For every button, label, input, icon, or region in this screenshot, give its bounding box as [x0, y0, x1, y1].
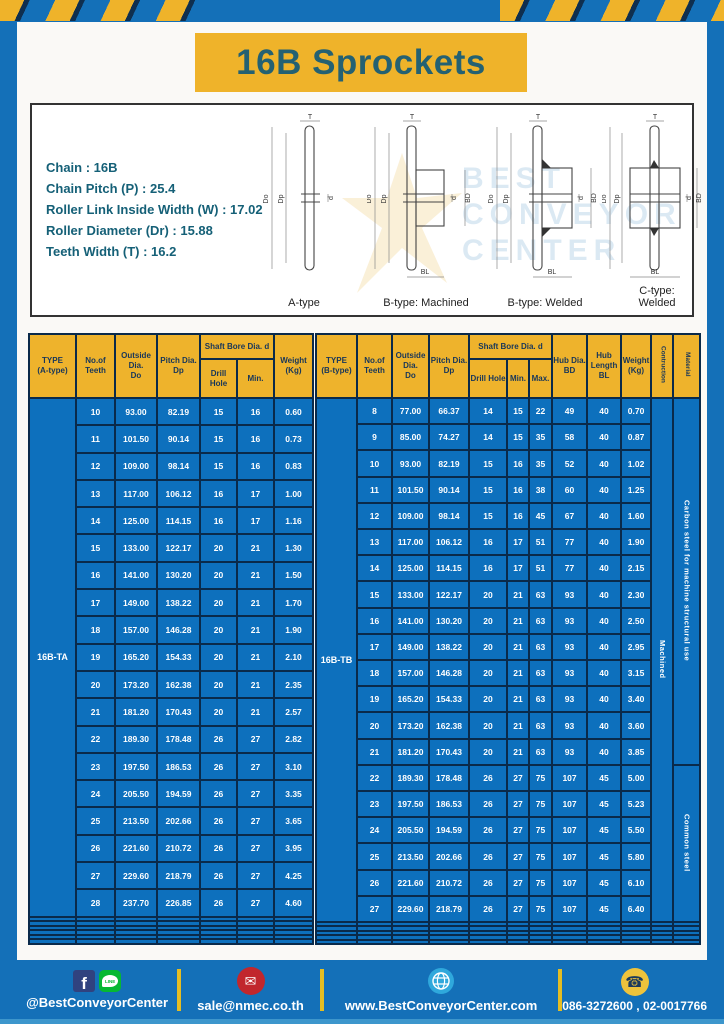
cell: 17	[237, 480, 274, 507]
cell: 10	[76, 398, 115, 425]
cell: 20	[76, 671, 115, 698]
cell: 141.00	[392, 608, 429, 634]
cell: 186.53	[429, 791, 469, 817]
cell: 20	[469, 686, 507, 712]
cell: 27	[357, 896, 392, 922]
header-cell: Shaft Bore Dia. d	[469, 334, 552, 359]
cell	[76, 939, 115, 944]
header-cell: Hub Dia. BD	[552, 334, 587, 398]
cell: 24	[76, 780, 115, 807]
cell: 5.50	[621, 817, 651, 843]
cell: 26	[200, 889, 237, 916]
cell: 114.15	[429, 555, 469, 581]
cell: 173.20	[392, 712, 429, 738]
cell: 27	[507, 765, 529, 791]
cell: 2.10	[274, 644, 313, 671]
cell: 146.28	[429, 660, 469, 686]
table-row: 19165.20154.3320216393403.40	[316, 686, 700, 712]
cell: 45	[587, 896, 621, 922]
cell: 11	[76, 425, 115, 452]
svg-text:Do: Do	[602, 194, 608, 203]
svg-text:BL: BL	[421, 269, 430, 276]
cell: 63	[529, 686, 552, 712]
cell: 0.87	[621, 424, 651, 450]
table-row: 13117.00106.1216175177401.90	[316, 529, 700, 555]
cell: 3.35	[274, 780, 313, 807]
header-cell: Weight (Kg)	[621, 334, 651, 398]
cell: 49	[552, 398, 587, 424]
cell: 40	[587, 450, 621, 476]
cell: 45	[587, 843, 621, 869]
cell: 130.20	[429, 608, 469, 634]
cell: 21	[237, 671, 274, 698]
diagram-panel: BEST CONVEYOR CENTER Chain : 16B Chain P…	[30, 103, 694, 317]
svg-text:Dp: Dp	[278, 194, 285, 203]
svg-text:BD: BD	[591, 193, 598, 203]
cell: 15	[507, 424, 529, 450]
cell	[429, 940, 469, 945]
cell: 16	[237, 425, 274, 452]
cell: 178.48	[429, 765, 469, 791]
cell: 2.30	[621, 581, 651, 607]
cell	[157, 939, 200, 944]
cell: 210.72	[429, 870, 469, 896]
cell: 9	[357, 424, 392, 450]
cell: 27	[237, 726, 274, 753]
cell: 25	[357, 843, 392, 869]
cell: 20	[200, 562, 237, 589]
cell: 2.95	[621, 634, 651, 660]
cell: 16	[469, 555, 507, 581]
figure-b-type-machined: T Do Dp d BD BL	[367, 113, 479, 283]
cell: 213.50	[115, 807, 157, 834]
cell: 75	[529, 843, 552, 869]
cell: 20	[200, 534, 237, 561]
cell: 26	[469, 765, 507, 791]
cell: 21	[237, 616, 274, 643]
header-cell: Min.	[507, 359, 529, 398]
cell: 20	[469, 739, 507, 765]
cell: 186.53	[157, 753, 200, 780]
table-row: 25213.50202.66262775107455.80	[316, 843, 700, 869]
cell: 21	[507, 608, 529, 634]
cell: 205.50	[392, 817, 429, 843]
website-url: www.BestConveyorCenter.com	[345, 998, 537, 1013]
table-b-sprockets: TYPE (B-type)No.of TeethOutside Dia. DoP…	[315, 333, 701, 945]
cell: 52	[552, 450, 587, 476]
cell: 35	[529, 450, 552, 476]
svg-text:Dp: Dp	[503, 194, 510, 203]
cell: 107	[552, 870, 587, 896]
cell: 101.50	[115, 425, 157, 452]
cell: 16	[507, 477, 529, 503]
empty-row	[29, 939, 313, 944]
cell: 122.17	[157, 534, 200, 561]
cell: 117.00	[392, 529, 429, 555]
cell	[357, 940, 392, 945]
cell: 165.20	[115, 644, 157, 671]
cell: 17	[237, 507, 274, 534]
cell: 125.00	[115, 507, 157, 534]
table-a-wrap: TYPE (A-type)No.of TeethOutside Dia. DoP…	[28, 333, 312, 945]
cell: 189.30	[392, 765, 429, 791]
cell: 40	[587, 686, 621, 712]
header-cell: Pitch Dia. Dp	[429, 334, 469, 398]
figure-c-type-welded: T Do Dp d BD BL	[602, 113, 702, 283]
cell	[392, 940, 429, 945]
footer-social-section: f LINE @BestConveyorCenter	[17, 962, 177, 1018]
cell: 109.00	[392, 503, 429, 529]
cell: 3.40	[621, 686, 651, 712]
header-cell: Outside Dia. Do	[392, 334, 429, 398]
cell: 67	[552, 503, 587, 529]
social-handle: @BestConveyorCenter	[26, 995, 168, 1010]
cell: 133.00	[392, 581, 429, 607]
cell	[621, 940, 651, 945]
cell: 27	[507, 896, 529, 922]
svg-text:Dp: Dp	[381, 194, 388, 203]
cell: 2.50	[621, 608, 651, 634]
cell	[237, 939, 274, 944]
cell: 13	[357, 529, 392, 555]
cell: 20	[469, 660, 507, 686]
cell: 165.20	[392, 686, 429, 712]
cell: 130.20	[157, 562, 200, 589]
cell: 2.82	[274, 726, 313, 753]
cell: 21	[237, 698, 274, 725]
cell: 19	[76, 644, 115, 671]
page-title: 16B Sprockets	[236, 43, 486, 83]
cell: 40	[587, 634, 621, 660]
table-row: 16B-TA1093.0082.1915160.60	[29, 398, 313, 425]
cell: 63	[529, 660, 552, 686]
cell: 21	[507, 660, 529, 686]
cell	[274, 939, 313, 944]
cell: 17	[507, 529, 529, 555]
header-cell: TYPE (A-type)	[29, 334, 76, 398]
cell: 194.59	[429, 817, 469, 843]
table-row: 27229.60218.79262775107456.40	[316, 896, 700, 922]
cell: 98.14	[429, 503, 469, 529]
cell: 1.30	[274, 534, 313, 561]
table-row: 16141.00130.2020216393402.50	[316, 608, 700, 634]
cell: 1.60	[621, 503, 651, 529]
cell: 173.20	[115, 671, 157, 698]
cell: 189.30	[115, 726, 157, 753]
sprocket-figures: T Do Dp d A-type T Do Dp	[32, 105, 692, 315]
cell: 21	[507, 634, 529, 660]
cell: 27	[76, 862, 115, 889]
cell: 14	[469, 424, 507, 450]
cell: 1.00	[274, 480, 313, 507]
cell: 27	[507, 870, 529, 896]
cell: 26	[469, 817, 507, 843]
cell: 16	[507, 503, 529, 529]
cell: 25	[76, 807, 115, 834]
cell: 15	[200, 453, 237, 480]
cell: 74.27	[429, 424, 469, 450]
cell: 117.00	[115, 480, 157, 507]
header-cell: TYPE (B-type)	[316, 334, 357, 398]
cell: 20	[200, 589, 237, 616]
cell: 162.38	[157, 671, 200, 698]
cell: 162.38	[429, 712, 469, 738]
cell: 12	[76, 453, 115, 480]
cell: 40	[587, 608, 621, 634]
cell: 27	[237, 807, 274, 834]
cell: 107	[552, 765, 587, 791]
cell: 21	[76, 698, 115, 725]
svg-text:Dp: Dp	[614, 194, 621, 203]
cell: 93	[552, 712, 587, 738]
empty-row	[316, 940, 700, 945]
figure-label: A-type	[288, 297, 320, 309]
header-cell: Min.	[237, 359, 274, 398]
cell: 197.50	[115, 753, 157, 780]
table-row: 23197.50186.53262775107455.23	[316, 791, 700, 817]
cell: 237.70	[115, 889, 157, 916]
cell: 20	[469, 712, 507, 738]
cell: 40	[587, 555, 621, 581]
cell: 58	[552, 424, 587, 450]
svg-text:d: d	[578, 196, 585, 200]
cell: 35	[529, 424, 552, 450]
cell: 21	[237, 562, 274, 589]
cell: 141.00	[115, 562, 157, 589]
svg-text:T: T	[410, 114, 415, 121]
cell: 82.19	[157, 398, 200, 425]
cell: 93	[552, 608, 587, 634]
cell: 146.28	[157, 616, 200, 643]
header-cell: Shaft Bore Dia. d	[200, 334, 274, 359]
cell: 221.60	[115, 835, 157, 862]
cell: 3.85	[621, 739, 651, 765]
header-cell: Pitch Dia. Dp	[157, 334, 200, 398]
figure-label: C-type: Welded	[638, 285, 675, 309]
cell: 45	[587, 817, 621, 843]
cell	[200, 939, 237, 944]
cell: 181.20	[115, 698, 157, 725]
cell: 181.20	[392, 739, 429, 765]
cell: 3.95	[274, 835, 313, 862]
cell: 26	[469, 843, 507, 869]
material-header: Material	[673, 334, 700, 398]
table-row: 1093.0082.1915163552401.02	[316, 450, 700, 476]
table-row: 14125.00114.1516175177402.15	[316, 555, 700, 581]
header-row: TYPE (A-type)No.of TeethOutside Dia. DoP…	[29, 334, 313, 359]
cell: 0.83	[274, 453, 313, 480]
cell: 93	[552, 634, 587, 660]
cell: 98.14	[157, 453, 200, 480]
svg-text:BD: BD	[696, 193, 702, 203]
material-value: Carbon steel for machine structural use	[673, 398, 700, 765]
table-row: 12109.0098.1415164567401.60	[316, 503, 700, 529]
cell: 20	[200, 644, 237, 671]
cell: 85.00	[392, 424, 429, 450]
catalog-page: { "title": "16B Sprockets", "specs": { "…	[0, 0, 724, 1024]
cell: 170.43	[157, 698, 200, 725]
table-row: 16B-TB877.0066.3714152249400.70MachinedC…	[316, 398, 700, 424]
cell: 13	[76, 480, 115, 507]
cell: 16	[357, 608, 392, 634]
cell	[469, 940, 507, 945]
cell	[651, 940, 673, 945]
cell: 93.00	[115, 398, 157, 425]
cell: 77.00	[392, 398, 429, 424]
cell: 16	[76, 562, 115, 589]
header-cell: Weight (Kg)	[274, 334, 313, 398]
cell: 27	[237, 835, 274, 862]
cell: 122.17	[429, 581, 469, 607]
cell: 1.25	[621, 477, 651, 503]
header-cell: Max.	[529, 359, 552, 398]
cell: 27	[507, 817, 529, 843]
cell: 109.00	[115, 453, 157, 480]
cell: 45	[587, 765, 621, 791]
cell: 106.12	[429, 529, 469, 555]
footer-email-section: ✉ sale@nmec.co.th	[181, 962, 320, 1018]
cell: 51	[529, 529, 552, 555]
figure-label: B-type: Machined	[383, 297, 469, 309]
cell: 210.72	[157, 835, 200, 862]
svg-text:d: d	[328, 196, 335, 200]
cell: 93	[552, 686, 587, 712]
cell: 77	[552, 555, 587, 581]
cell	[673, 940, 700, 945]
cell: 101.50	[392, 477, 429, 503]
table-b-wrap: TYPE (B-type)No.of TeethOutside Dia. DoP…	[315, 333, 700, 945]
cell: 93.00	[392, 450, 429, 476]
cell: 1.90	[274, 616, 313, 643]
cell: 90.14	[157, 425, 200, 452]
cell: 4.25	[274, 862, 313, 889]
cell: 2.15	[621, 555, 651, 581]
table-row: 26221.60210.72262775107456.10	[316, 870, 700, 896]
cell: 218.79	[157, 862, 200, 889]
cell: 24	[357, 817, 392, 843]
cell: 16	[200, 480, 237, 507]
cell: 15	[357, 581, 392, 607]
cell: 15	[76, 534, 115, 561]
cell: 75	[529, 791, 552, 817]
cell: 16	[469, 529, 507, 555]
cell: 6.10	[621, 870, 651, 896]
cell: 21	[237, 534, 274, 561]
cell: 26	[200, 862, 237, 889]
cell: 8	[357, 398, 392, 424]
cell: 75	[529, 896, 552, 922]
cell: 14	[469, 398, 507, 424]
table-row: 11101.5090.1415163860401.25	[316, 477, 700, 503]
cell: 27	[237, 862, 274, 889]
cell: 157.00	[115, 616, 157, 643]
cell: 27	[237, 780, 274, 807]
facebook-icon: f	[73, 970, 95, 992]
table-row: 21181.20170.4320216393403.85	[316, 739, 700, 765]
cell: 16	[237, 398, 274, 425]
table-row: 17149.00138.2220216393402.95	[316, 634, 700, 660]
cell: 149.00	[115, 589, 157, 616]
cell: 107	[552, 843, 587, 869]
cell: 0.73	[274, 425, 313, 452]
table-a-sprockets: TYPE (A-type)No.of TeethOutside Dia. DoP…	[28, 333, 314, 945]
cell: 23	[76, 753, 115, 780]
cell: 82.19	[429, 450, 469, 476]
cell	[552, 940, 587, 945]
header-cell: No.of Teeth	[357, 334, 392, 398]
cell: 6.40	[621, 896, 651, 922]
cell: 26	[357, 870, 392, 896]
cell: 0.70	[621, 398, 651, 424]
figure-label: B-type: Welded	[507, 297, 582, 309]
cell: 221.60	[392, 870, 429, 896]
cell: 63	[529, 581, 552, 607]
cell: 75	[529, 870, 552, 896]
construction-header: Contruction	[651, 334, 673, 398]
table-row: 15133.00122.1720216393402.30	[316, 581, 700, 607]
cell: 15	[469, 450, 507, 476]
cell: 213.50	[392, 843, 429, 869]
cell: 20	[200, 616, 237, 643]
cell: 16	[237, 453, 274, 480]
header-cell: Hub Length BL	[587, 334, 621, 398]
footer-website-section: www.BestConveyorCenter.com	[324, 962, 559, 1018]
hazard-stripes-right	[500, 0, 724, 21]
type-label: 16B-TA	[29, 398, 76, 917]
svg-text:Do: Do	[488, 194, 495, 203]
cell: 157.00	[392, 660, 429, 686]
cell: 202.66	[429, 843, 469, 869]
header-cell: Drill Hole	[469, 359, 507, 398]
cell: 22	[76, 726, 115, 753]
cell: 205.50	[115, 780, 157, 807]
material-value: Common steel	[673, 765, 700, 922]
cell: 40	[587, 477, 621, 503]
cell: 27	[507, 843, 529, 869]
cell: 45	[529, 503, 552, 529]
cell: 149.00	[392, 634, 429, 660]
title-banner: 16B Sprockets	[195, 33, 527, 92]
cell	[587, 940, 621, 945]
cell: 2.57	[274, 698, 313, 725]
cell: 21	[507, 712, 529, 738]
cell: 229.60	[392, 896, 429, 922]
cell: 3.60	[621, 712, 651, 738]
cell: 40	[587, 503, 621, 529]
cell: 19	[357, 686, 392, 712]
hazard-stripes-left	[0, 0, 196, 21]
svg-text:T: T	[536, 114, 541, 121]
cell: 21	[507, 581, 529, 607]
cell: 75	[529, 765, 552, 791]
cell: 23	[357, 791, 392, 817]
cell	[316, 940, 357, 945]
header-cell: No.of Teeth	[76, 334, 115, 398]
cell: 20	[469, 581, 507, 607]
cell: 27	[237, 753, 274, 780]
cell: 27	[507, 791, 529, 817]
cell: 26	[469, 896, 507, 922]
cell: 63	[529, 739, 552, 765]
cell: 2.35	[274, 671, 313, 698]
cell: 93	[552, 660, 587, 686]
cell: 26	[200, 780, 237, 807]
type-label: 16B-TB	[316, 398, 357, 922]
table-row: 18157.00146.2820216393403.15	[316, 660, 700, 686]
cell: 21	[357, 739, 392, 765]
cell: 26	[76, 835, 115, 862]
cell: 17	[357, 634, 392, 660]
